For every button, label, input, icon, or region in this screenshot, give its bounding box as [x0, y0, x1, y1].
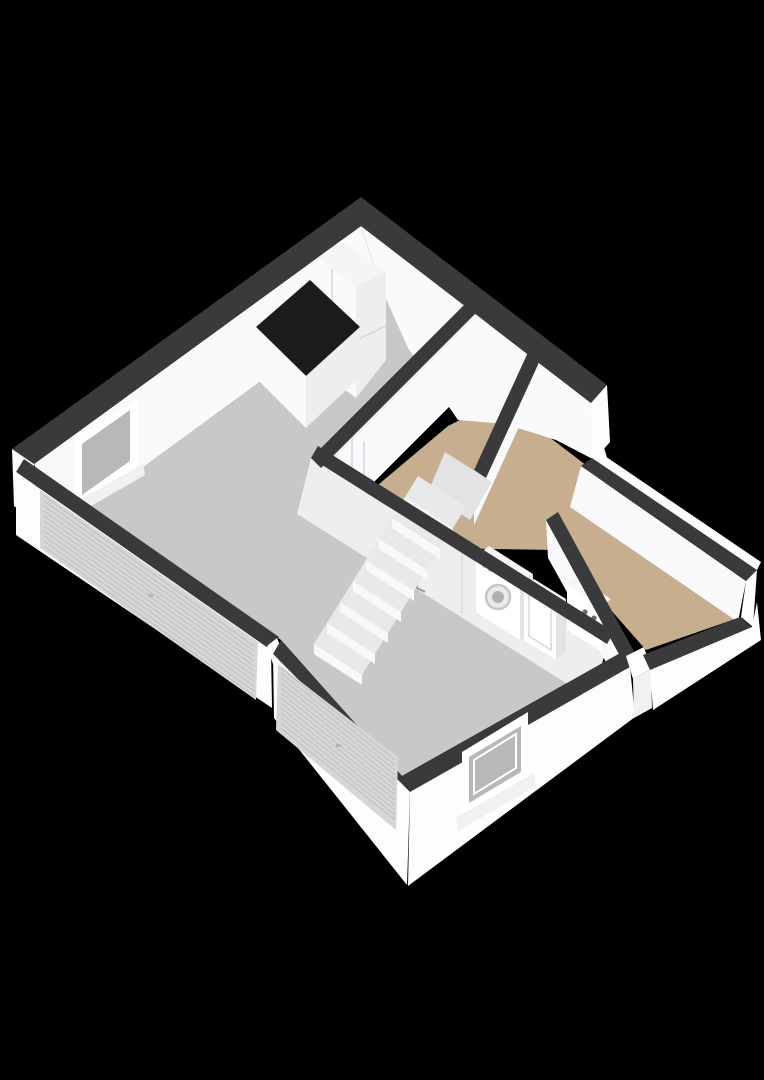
floorplan-3d-view	[0, 0, 764, 1080]
door-handle-mark	[336, 744, 341, 747]
door-handle-mark	[148, 594, 153, 597]
washer-door-glass	[492, 591, 504, 603]
floorplan-canvas	[0, 0, 764, 1080]
